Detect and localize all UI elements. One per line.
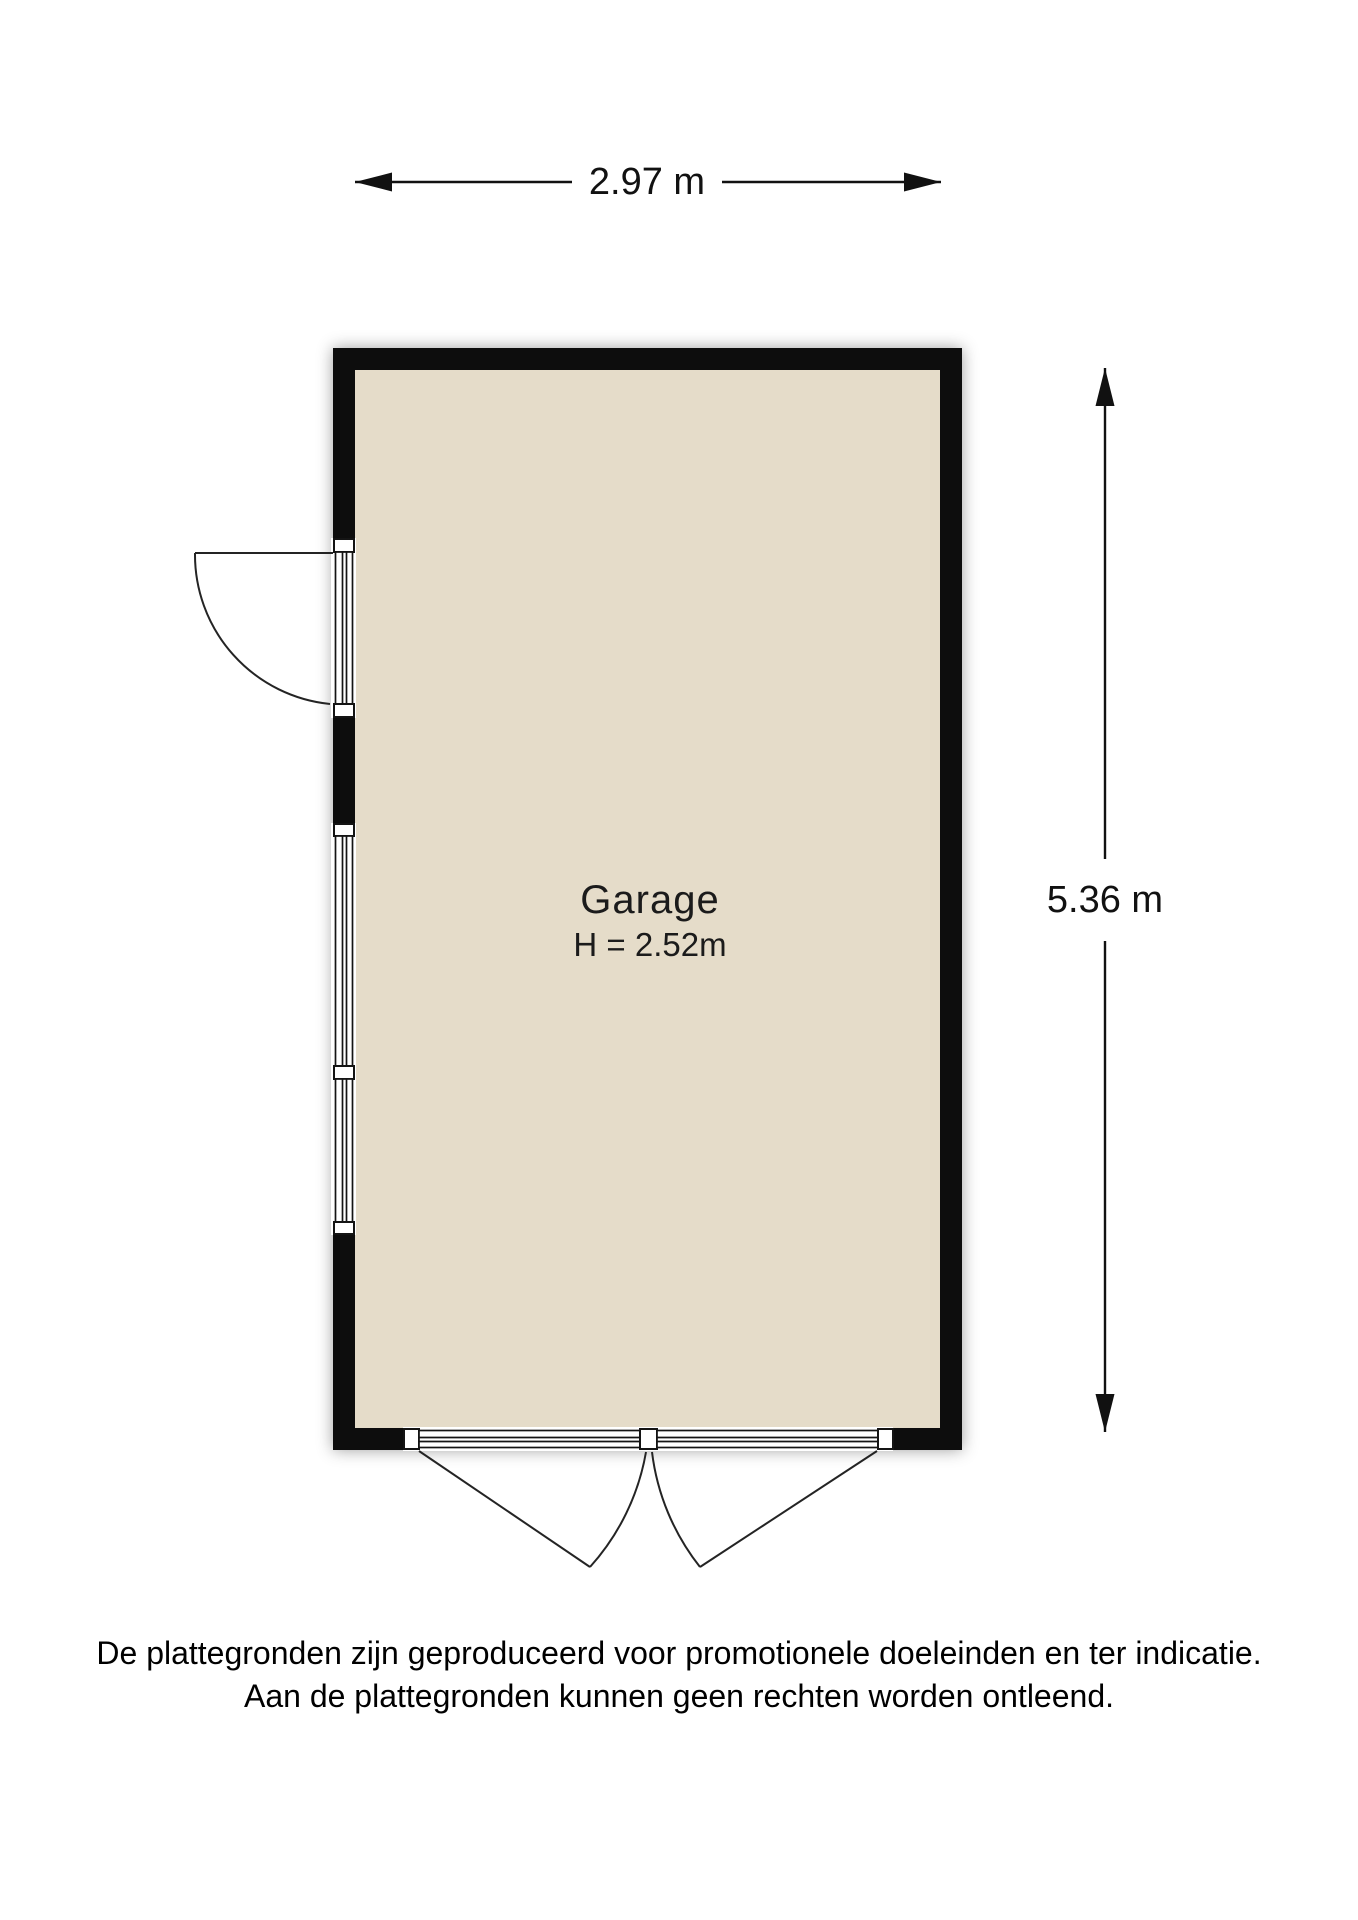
disclaimer: De plattegronden zijn geproduceerd voor … <box>0 1632 1358 1718</box>
garage-door-left-swing-arc <box>590 1452 646 1567</box>
floorplan-page: 2.97 m 5.36 m Garage H = 2.52m De platte… <box>0 0 1358 1920</box>
garage-door-frame-left <box>404 1429 419 1449</box>
entry-door <box>195 538 356 718</box>
arrowhead-up-icon <box>1096 368 1115 406</box>
garage-door-panel-right <box>657 1431 878 1448</box>
arrowhead-left-icon <box>355 173 392 192</box>
left-window <box>331 823 356 1235</box>
entry-door-panel <box>336 552 353 704</box>
arrowhead-right-icon <box>904 173 941 192</box>
room-height-label: H = 2.52m <box>573 924 726 966</box>
dimension-width-label: 2.97 m <box>589 160 705 204</box>
room-label: Garage H = 2.52m <box>573 876 726 966</box>
left-window-frame-bottom <box>334 1222 354 1234</box>
entry-door-swing-arc <box>195 553 330 704</box>
garage-door-panel-left <box>419 1431 640 1448</box>
room-name: Garage <box>573 876 726 924</box>
left-window-mullion <box>334 1066 354 1079</box>
left-window-frame-top <box>334 824 354 836</box>
garage-door-frame-center <box>640 1429 657 1449</box>
garage-door-right-leaf <box>700 1451 877 1567</box>
dimension-height-label: 5.36 m <box>1047 878 1163 922</box>
entry-door-frame-top <box>334 539 354 552</box>
garage-double-door <box>403 1427 893 1567</box>
left-window-glass-upper <box>336 836 353 1066</box>
arrowhead-down-icon <box>1096 1394 1115 1432</box>
garage-door-frame-right <box>878 1429 893 1449</box>
left-window-glass-lower <box>336 1079 353 1222</box>
disclaimer-line-2: Aan de plattegronden kunnen geen rechten… <box>0 1675 1358 1718</box>
entry-door-frame-bottom <box>334 704 354 717</box>
garage-door-left-leaf <box>419 1451 590 1567</box>
garage-door-right-swing-arc <box>652 1452 700 1567</box>
disclaimer-line-1: De plattegronden zijn geproduceerd voor … <box>0 1632 1358 1675</box>
